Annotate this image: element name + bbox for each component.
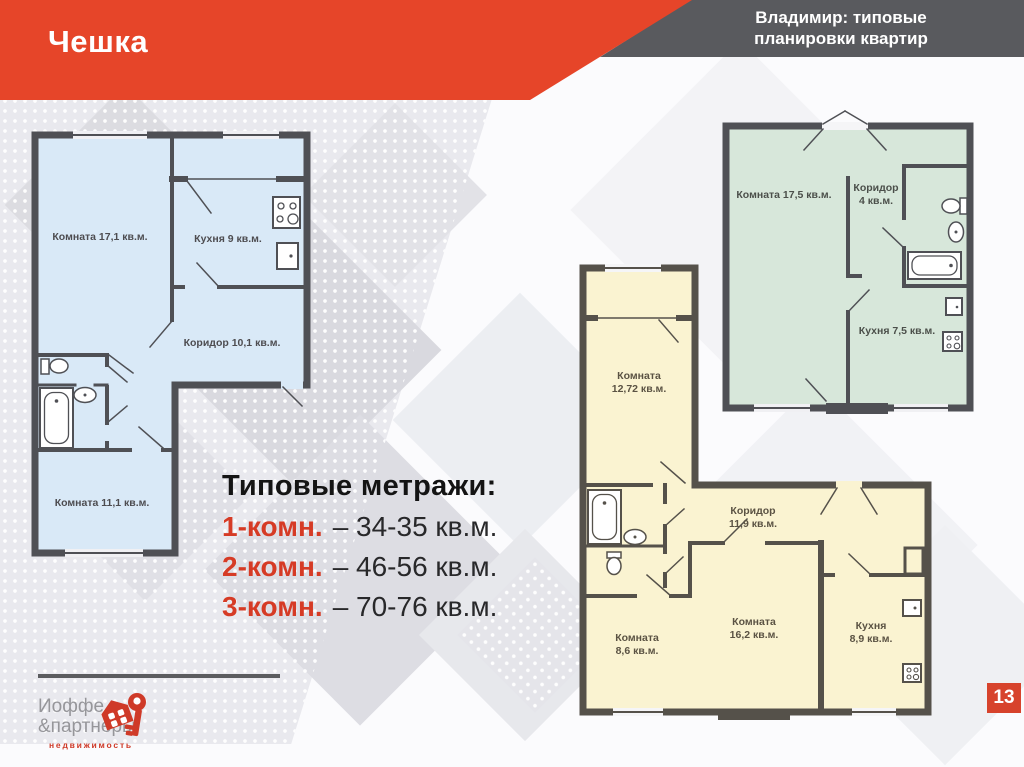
- metric-row-2: 2-комн. – 46-56 кв.м.: [222, 551, 497, 583]
- room-label-yellow-room1: Комната 12,72 кв.м.: [612, 370, 667, 396]
- room-label-yellow-room1-line2: 12,72 кв.м.: [612, 383, 667, 396]
- toilet-icon: [942, 198, 967, 214]
- page-number: 13: [987, 683, 1021, 713]
- room-label-yellow-corridor: Коридор 11,9 кв.м.: [729, 505, 777, 531]
- metrics-heading: Типовые метражи:: [222, 470, 497, 503]
- bath-sink-icon: [949, 222, 964, 242]
- metric-value-3: – 70-76 кв.м.: [333, 591, 498, 623]
- header-subtitle-line1: Владимир: типовые: [733, 7, 949, 28]
- floor-plan-three-room: Комната 12,72 кв.м. Коридор 11,9 кв.м. К…: [579, 264, 934, 724]
- room-label-yellow-room2-line2: 8,6 кв.м.: [615, 645, 659, 658]
- bathtub-icon: [40, 388, 73, 448]
- room-label-yellow-kitchen-line2: 8,9 кв.м.: [850, 633, 893, 646]
- kitchen-sink-icon: [903, 600, 921, 616]
- room-label-blue-kitchen: Кухня 9 кв.м.: [194, 233, 262, 246]
- room-label-yellow-corridor-line2: 11,9 кв.м.: [729, 518, 777, 531]
- room-label-green-corridor-line1: Коридор: [853, 182, 898, 195]
- header-subtitle: Владимир: типовые планировки квартир: [733, 7, 949, 49]
- company-logo: Иоффе &партнеры недвижимость: [36, 690, 186, 760]
- metric-row-1: 1-комн. – 34-35 кв.м.: [222, 511, 497, 543]
- room-label-yellow-room3: Комната 16,2 кв.м.: [730, 616, 779, 642]
- stove-icon: [903, 664, 921, 682]
- toilet-icon: [41, 359, 68, 374]
- room-label-yellow-room3-line1: Комната: [730, 616, 779, 629]
- room-label-yellow-kitchen-line1: Кухня: [850, 620, 893, 633]
- metric-label-1: 1-комн.: [222, 511, 323, 543]
- room-label-green-corridor: Коридор 4 кв.м.: [853, 182, 898, 208]
- metric-label-2: 2-комн.: [222, 551, 323, 583]
- room-label-green-corridor-line2: 4 кв.м.: [853, 195, 898, 208]
- footer-divider-line: [38, 674, 280, 678]
- metric-row-3: 3-комн. – 70-76 кв.м.: [222, 591, 497, 623]
- room-label-blue-room1: Комната 17,1 кв.м.: [52, 231, 147, 244]
- page-title: Чешка: [48, 24, 148, 60]
- room-label-yellow-room2-line1: Комната: [615, 632, 659, 645]
- fridge-icon: [946, 298, 962, 315]
- toilet-icon: [607, 552, 621, 575]
- header-subtitle-line2: планировки квартир: [733, 28, 949, 49]
- room-label-yellow-room2: Комната 8,6 кв.м.: [615, 632, 659, 658]
- room-label-green-room: Комната 17,5 кв.м.: [736, 189, 831, 202]
- room-label-blue-corridor: Коридор 10,1 кв.м.: [184, 337, 281, 350]
- metric-value-1: – 34-35 кв.м.: [333, 511, 498, 543]
- room-label-yellow-kitchen: Кухня 8,9 кв.м.: [850, 620, 893, 646]
- bathtub-icon: [588, 490, 621, 544]
- room-label-blue-room2: Комната 11,1 кв.м.: [55, 497, 150, 510]
- metric-label-3: 3-комн.: [222, 591, 323, 623]
- kitchen-sink-icon: [277, 243, 298, 269]
- room-label-yellow-room3-line2: 16,2 кв.м.: [730, 629, 779, 642]
- stove-icon: [943, 332, 962, 351]
- metric-value-2: – 46-56 кв.м.: [333, 551, 498, 583]
- bath-sink-icon: [74, 388, 96, 403]
- stove-icon: [273, 197, 300, 228]
- logo-key-icon: [93, 688, 153, 746]
- slide: Чешка Владимир: типовые планировки кварт…: [0, 0, 1024, 767]
- bath-sink-icon: [624, 530, 646, 545]
- room-label-yellow-corridor-line1: Коридор: [729, 505, 777, 518]
- metrics-block: Типовые метражи: 1-комн. – 34-35 кв.м. 2…: [222, 470, 497, 623]
- room-label-yellow-room1-line1: Комната: [612, 370, 667, 383]
